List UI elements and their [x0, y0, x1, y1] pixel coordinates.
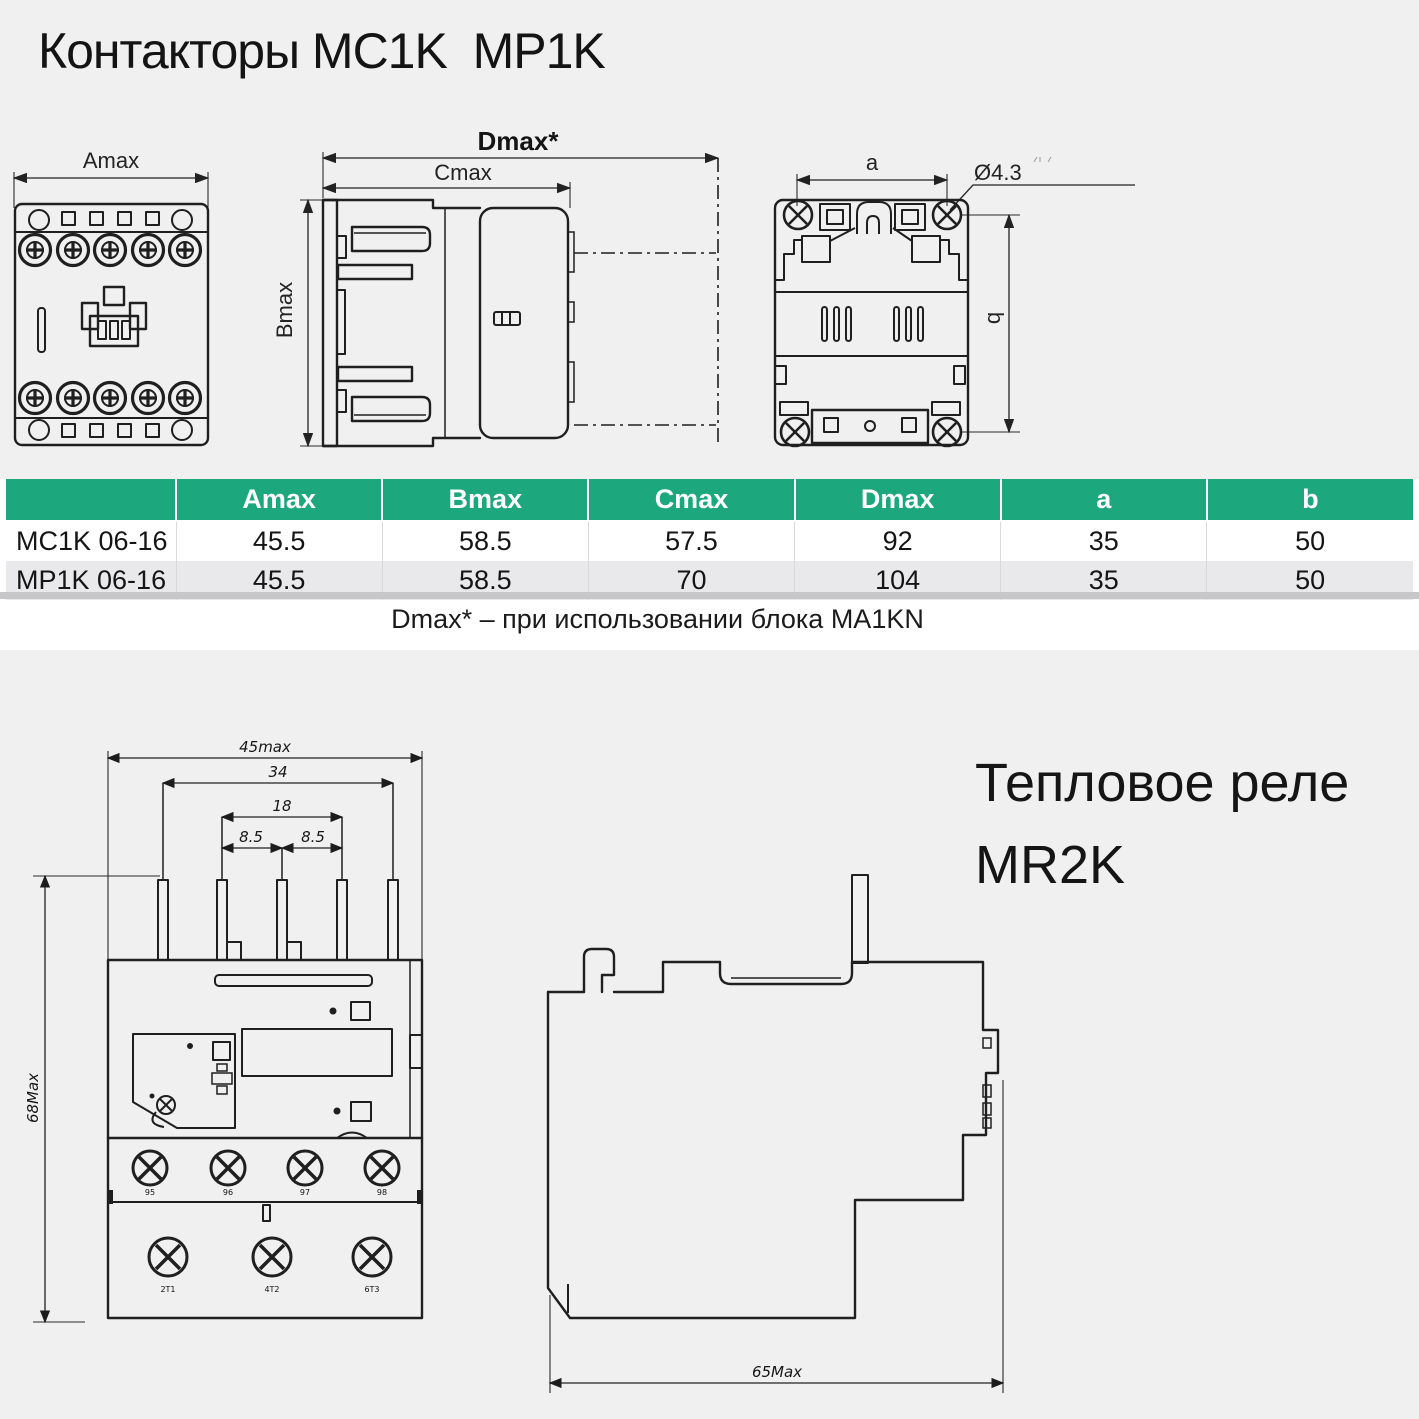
- bmax-dimension-label: Bmax: [272, 282, 297, 338]
- dim-45max-label: 45max: [239, 738, 291, 756]
- aux-label: 96: [223, 1188, 233, 1197]
- relay-depth-dimension: 65Max: [550, 1080, 1003, 1393]
- main-label: 6T3: [364, 1285, 379, 1294]
- hole-diameter-label: Ø4.3: [974, 160, 1022, 185]
- a-dimension-label: a: [866, 150, 879, 175]
- table-bottom-divider: [0, 592, 1419, 599]
- ma1kn-block-outline: [574, 158, 718, 445]
- cell-value: 50: [1207, 521, 1413, 561]
- dim-65max-label: 65Max: [752, 1363, 802, 1381]
- terminal-screws-top-row: [20, 235, 201, 266]
- aux-terminal-labels: 95 96 97 98: [145, 1188, 387, 1197]
- amax-dimension-label: Amax: [83, 148, 139, 173]
- terminal-screws-bottom-row: [20, 383, 201, 414]
- main-label: 4T2: [264, 1285, 279, 1294]
- contactor-front-view-drawing: Amax: [12, 148, 230, 460]
- table-row-mc1k: MC1K 06-16 45.5 58.5 57.5 92 35 50: [6, 521, 1413, 561]
- main-terminal-labels: 2T1 4T2 6T3: [160, 1285, 379, 1294]
- hole-diameter-callout: Ø4.3: [950, 157, 1135, 210]
- dim-34-label: 34: [268, 763, 287, 781]
- dimensions-table-header: Amax Bmax Cmax Dmax a b: [6, 479, 1413, 521]
- cell-value: 57.5: [588, 521, 794, 561]
- header-cell-cmax: Cmax: [588, 479, 794, 521]
- header-cell-dmax: Dmax: [795, 479, 1001, 521]
- a-dimension: a: [797, 150, 947, 206]
- aux-label: 98: [377, 1188, 387, 1197]
- contactor-rear-body: [775, 200, 968, 445]
- dim-85-left-label: 8.5: [239, 828, 263, 846]
- main-terminal-screws: [149, 1238, 391, 1276]
- dim-68max-label: 68Max: [24, 1073, 42, 1123]
- adjustment-panel-details: [150, 1042, 233, 1127]
- contactor-side-view-drawing: Dmax* Cmax Bmax: [278, 112, 748, 467]
- amax-dimension: Amax: [14, 148, 208, 208]
- cmax-dimension-label: Cmax: [434, 160, 491, 185]
- b-dimension: b: [962, 215, 1020, 432]
- ventilation-slits: [822, 307, 923, 341]
- contactor-side-body: [323, 200, 574, 446]
- header-cell-amax: Amax: [176, 479, 382, 521]
- aux-label: 95: [145, 1188, 155, 1197]
- bmax-dimension: Bmax: [272, 200, 326, 446]
- table-footnote: Dmax* – при использовании блока MA1KN: [0, 604, 1315, 635]
- contactor-rear-view-drawing: a Ø4.3 b: [772, 148, 1142, 468]
- header-cell-a: a: [1001, 479, 1207, 521]
- cell-value: 58.5: [382, 521, 588, 561]
- aux-label: 97: [300, 1188, 310, 1197]
- dmax-dimension: Dmax*: [323, 126, 718, 198]
- relay-side-view-drawing: 65Max: [540, 860, 1010, 1405]
- relay-side-body: [548, 875, 998, 1318]
- b-dimension-label: b: [983, 312, 1008, 324]
- row-label: MC1K 06-16: [6, 521, 176, 561]
- dim-85-right-label: 8.5: [301, 828, 325, 846]
- relay-title-line1: Тепловое реле: [975, 742, 1349, 824]
- header-cell-blank: [6, 479, 176, 521]
- relay-front-view-drawing: 45max 34 18 8.5 8.5 68Max: [25, 735, 460, 1335]
- cell-value: 35: [1001, 521, 1207, 561]
- relay-width-dimensions: 45max 34 18 8.5 8.5: [108, 738, 422, 960]
- header-cell-b: b: [1207, 479, 1413, 521]
- main-label: 2T1: [160, 1285, 175, 1294]
- header-cell-bmax: Bmax: [382, 479, 588, 521]
- page-title: Контакторы MC1K MP1K: [38, 22, 605, 80]
- cell-value: 45.5: [176, 521, 382, 561]
- relay-title-line2: MR2K: [975, 824, 1349, 906]
- dmax-dimension-label: Dmax*: [478, 126, 560, 156]
- datasheet-page: Контакторы MC1K MP1K Amax: [0, 0, 1419, 1419]
- relay-section-title: Тепловое реле MR2K: [975, 742, 1349, 906]
- cell-value: 92: [795, 521, 1001, 561]
- dim-18-label: 18: [272, 797, 291, 815]
- dimensions-table: Amax Bmax Cmax Dmax a b MC1K 06-16 45.5 …: [6, 479, 1413, 600]
- center-latch: [82, 287, 146, 346]
- side-indicator-button: [494, 312, 520, 325]
- aux-terminal-screws: [133, 1151, 399, 1185]
- relay-height-dimension: 68Max: [24, 876, 160, 1322]
